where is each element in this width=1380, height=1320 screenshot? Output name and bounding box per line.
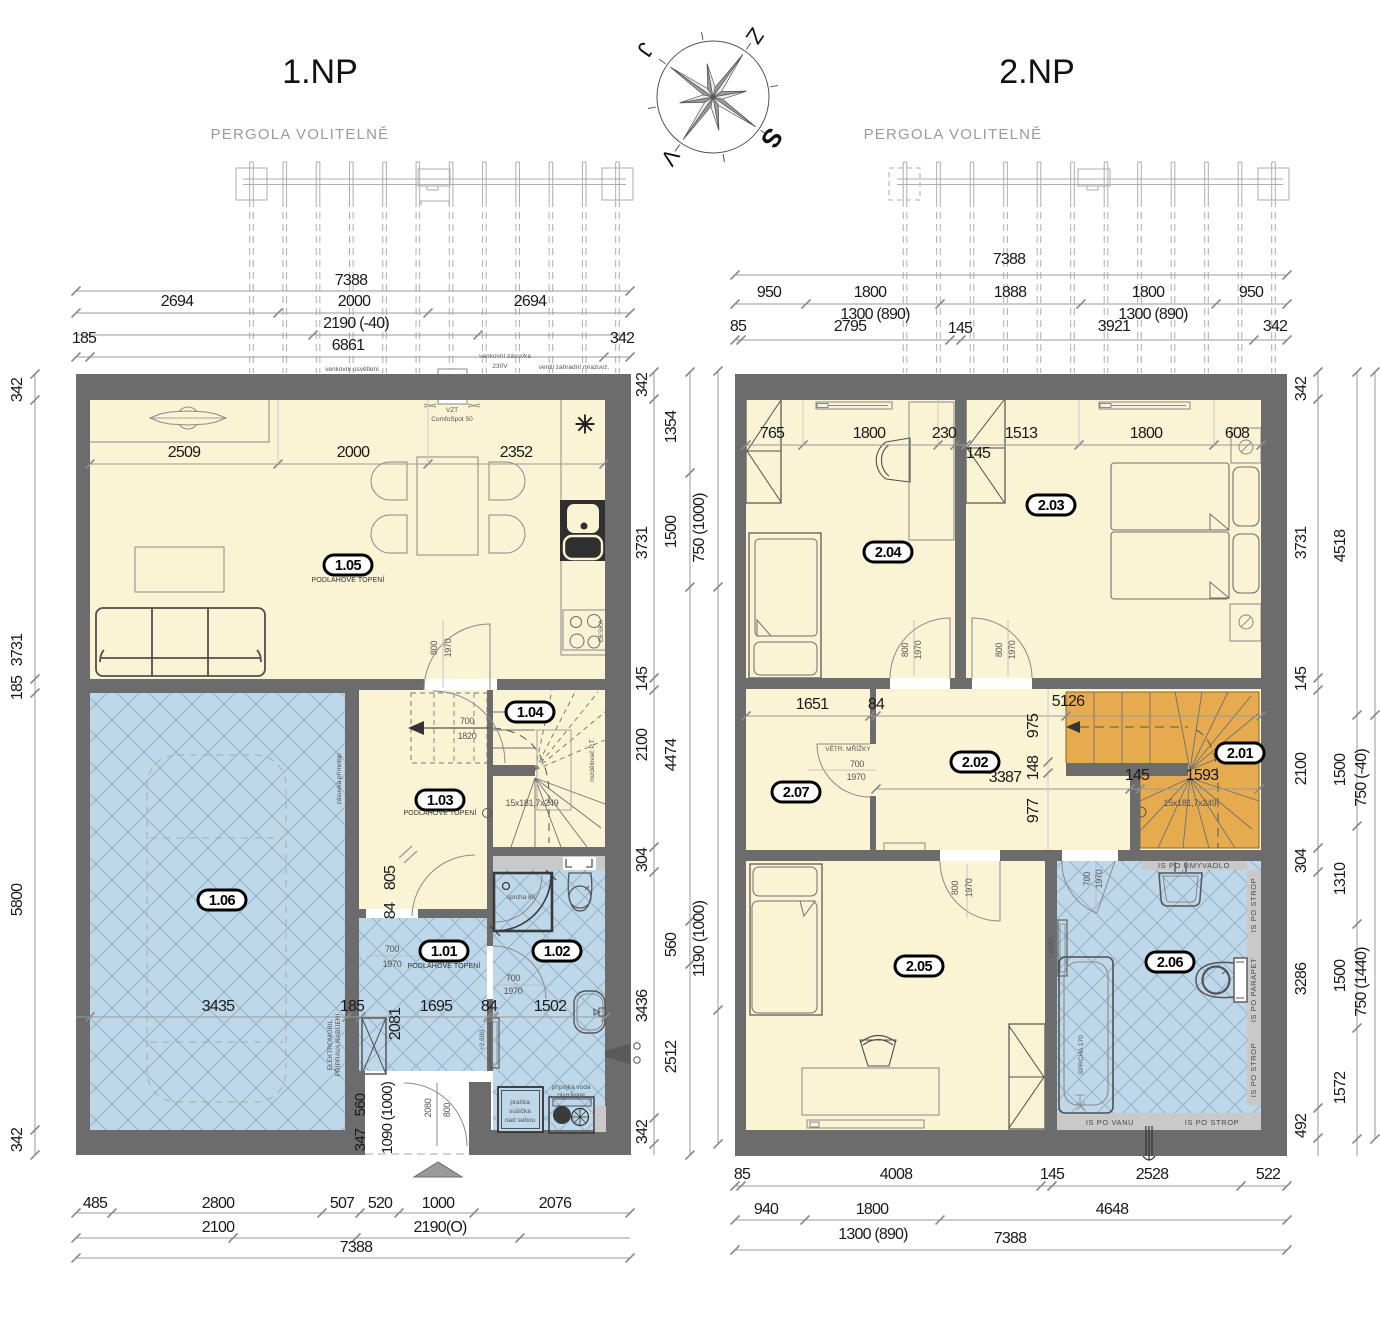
svg-text:+2,450: +2,450 [1048,938,1055,958]
svg-text:zásuvka přímotop: zásuvka přímotop [336,753,343,805]
svg-text:2795: 2795 [834,318,867,335]
svg-text:185: 185 [9,675,26,700]
svg-text:15x181,7x249: 15x181,7x249 [506,798,559,808]
svg-text:750 (1000): 750 (1000) [691,493,708,563]
svg-text:800: 800 [442,1103,452,1117]
svg-text:342: 342 [634,372,651,397]
svg-text:1593: 1593 [1186,767,1219,784]
svg-text:2.04: 2.04 [875,545,902,561]
svg-text:1.01: 1.01 [431,944,458,960]
svg-text:VZT: VZT [446,407,458,414]
svg-text:85: 85 [730,318,747,335]
svg-text:4648: 4648 [1096,1201,1129,1218]
svg-text:2190 (-40): 2190 (-40) [323,315,389,332]
svg-text:nad sebou: nad sebou [505,1117,536,1124]
svg-text:1970: 1970 [383,959,402,969]
svg-text:3387: 3387 [989,769,1022,786]
svg-text:1.05: 1.05 [335,558,362,574]
svg-text:145: 145 [1125,767,1150,784]
svg-text:4474: 4474 [663,738,680,771]
svg-text:1695: 1695 [420,998,453,1015]
svg-text:3921: 3921 [1098,318,1131,335]
svg-text:1888: 1888 [994,284,1027,301]
svg-text:3286: 3286 [1293,962,1310,995]
svg-text:1500: 1500 [663,515,680,548]
svg-text:85: 85 [734,1166,751,1183]
svg-text:342: 342 [9,377,26,402]
svg-text:2528: 2528 [1136,1166,1169,1183]
svg-text:1970: 1970 [913,640,923,659]
svg-text:145: 145 [634,666,651,691]
svg-text:7388: 7388 [335,272,368,289]
svg-text:+2,600: +2,600 [479,1030,486,1050]
svg-text:185: 185 [72,330,97,347]
svg-text:700: 700 [385,944,399,954]
svg-text:IS PO STROP: IS PO STROP [1249,878,1258,933]
svg-text:304: 304 [634,847,651,872]
svg-text:950: 950 [1239,284,1264,301]
svg-text:4008: 4008 [880,1166,913,1183]
svg-text:PODLAHOVÉ TOPENÍ: PODLAHOVÉ TOPENÍ [404,808,477,817]
svg-text:1970: 1970 [504,986,523,996]
svg-text:2512: 2512 [663,1040,680,1073]
svg-text:přípojka voda: přípojka voda [551,1084,590,1091]
svg-text:4518: 4518 [1332,529,1349,562]
svg-text:1502: 1502 [534,998,567,1015]
svg-text:230: 230 [932,425,957,442]
svg-text:3731: 3731 [9,633,26,666]
svg-text:800: 800 [429,641,439,655]
svg-text:IS PO STROP: IS PO STROP [1249,1043,1258,1098]
svg-text:ELEKTROMOBIL: ELEKTROMOBIL [327,1019,334,1070]
svg-text:342: 342 [1293,376,1310,401]
svg-text:1090 (1000): 1090 (1000) [379,1081,396,1154]
svg-text:975: 975 [1025,713,1042,738]
svg-text:2.05: 2.05 [906,959,933,975]
svg-text:1651: 1651 [796,696,829,713]
svg-text:145: 145 [1293,666,1310,691]
svg-text:2100: 2100 [1293,752,1310,785]
svg-text:2694: 2694 [514,293,547,310]
svg-text:185: 185 [340,998,365,1015]
svg-text:148: 148 [1025,755,1042,780]
svg-text:805: 805 [382,865,399,890]
svg-text:700: 700 [460,716,474,726]
svg-text:1970: 1970 [1007,640,1017,659]
svg-text:5800: 5800 [9,883,26,916]
svg-text:1800: 1800 [853,425,886,442]
svg-text:230V: 230V [492,363,508,370]
svg-text:PODLAHOVÉ TOPENÍ: PODLAHOVÉ TOPENÍ [312,575,385,584]
svg-text:7388: 7388 [340,1239,373,1256]
svg-text:507: 507 [330,1195,355,1212]
svg-text:2081: 2081 [387,1007,404,1040]
svg-text:3731: 3731 [1293,526,1310,559]
svg-text:1970: 1970 [847,772,866,782]
svg-text:950: 950 [757,284,782,301]
svg-text:1800: 1800 [854,284,887,301]
svg-text:2.NP: 2.NP [999,53,1075,91]
svg-text:347: 347 [352,1128,369,1151]
svg-text:plyn.kotel: plyn.kotel [557,1092,585,1099]
svg-text:1970: 1970 [443,638,453,657]
svg-text:rozdělovač P.T.: rozdělovač P.T. [589,738,596,782]
svg-text:PODLAHOVÉ TOPENÍ: PODLAHOVÉ TOPENÍ [408,961,481,970]
svg-text:1.04: 1.04 [517,705,544,721]
svg-text:1.03: 1.03 [427,793,454,809]
svg-text:PERGOLA VOLITELNĚ: PERGOLA VOLITELNĚ [211,126,390,143]
svg-text:2.06: 2.06 [1157,955,1184,971]
svg-text:2000: 2000 [337,444,370,461]
svg-text:2000: 2000 [338,293,371,310]
svg-text:608: 608 [1225,425,1250,442]
svg-text:sprcha 80: sprcha 80 [507,894,536,901]
svg-text:700: 700 [1082,872,1092,886]
svg-text:IS PO VANU: IS PO VANU [1086,1118,1134,1127]
svg-text:1572: 1572 [1332,1071,1349,1104]
svg-text:PŘÍPRAVA NABÍJENÍ: PŘÍPRAVA NABÍJENÍ [333,1014,342,1077]
svg-text:800: 800 [950,881,960,895]
svg-text:1.NP: 1.NP [282,53,358,91]
svg-text:1310: 1310 [1332,862,1349,895]
svg-text:304: 304 [1293,848,1310,873]
svg-text:145: 145 [966,445,991,462]
svg-text:2080: 2080 [423,1098,433,1117]
svg-text:2694: 2694 [161,293,194,310]
svg-text:2.02: 2.02 [962,755,989,771]
svg-text:DESKA: DESKA [598,619,605,642]
svg-text:800: 800 [994,643,1004,657]
svg-text:PERGOLA VOLITELNĚ: PERGOLA VOLITELNĚ [864,126,1043,143]
svg-text:1800: 1800 [1130,425,1163,442]
svg-text:3435: 3435 [202,998,235,1015]
svg-text:1500: 1500 [1332,959,1349,992]
svg-text:IS PO STROP: IS PO STROP [1185,1118,1240,1127]
svg-text:venkovní osvětlení: venkovní osvětlení [325,366,379,373]
svg-text:1513: 1513 [1005,425,1038,442]
svg-text:800: 800 [900,643,910,657]
svg-text:1000: 1000 [422,1195,455,1212]
svg-text:2100: 2100 [634,728,651,761]
svg-text:sušička: sušička [509,1108,531,1115]
svg-text:492: 492 [1293,1113,1310,1138]
svg-text:750 (-40): 750 (-40) [1353,749,1370,807]
svg-text:342: 342 [634,1119,651,1144]
svg-text:ComfoSpot 50: ComfoSpot 50 [431,416,473,423]
svg-text:560: 560 [663,932,680,957]
svg-text:1.06: 1.06 [209,893,236,909]
svg-text:1190 (1000): 1190 (1000) [691,900,708,977]
svg-text:940: 940 [754,1201,779,1218]
svg-text:522: 522 [1256,1166,1281,1183]
svg-text:IS PO UMYVADLO: IS PO UMYVADLO [1158,861,1230,870]
svg-text:2100: 2100 [202,1219,235,1236]
svg-text:pračka: pračka [510,1099,530,1106]
svg-text:560: 560 [352,1093,369,1116]
svg-text:2352: 2352 [500,444,533,461]
svg-text:750 (1440): 750 (1440) [1353,947,1370,1017]
svg-text:5126: 5126 [1052,693,1085,710]
svg-text:1800: 1800 [856,1201,889,1218]
svg-text:145: 145 [948,320,973,337]
svg-text:1800: 1800 [1132,284,1165,301]
svg-text:SPRCHA 170: SPRCHA 170 [1078,1035,1085,1075]
svg-text:700: 700 [850,759,864,769]
svg-text:765: 765 [760,425,785,442]
svg-text:977: 977 [1025,798,1042,823]
svg-text:84: 84 [481,998,498,1015]
svg-text:6861: 6861 [332,337,365,354]
svg-text:3731: 3731 [634,526,651,559]
svg-text:342: 342 [1263,318,1288,335]
svg-text:520: 520 [368,1195,393,1212]
svg-text:342: 342 [9,1127,26,1152]
svg-text:2.01: 2.01 [1227,746,1254,762]
svg-text:145: 145 [1040,1166,1065,1183]
svg-text:84: 84 [382,902,399,919]
svg-text:3436: 3436 [634,989,651,1022]
svg-text:84: 84 [868,696,885,713]
svg-text:1.02: 1.02 [544,944,571,960]
svg-text:1354: 1354 [663,410,680,443]
svg-text:700: 700 [506,973,520,983]
svg-text:IS PO PARAPET: IS PO PARAPET [1249,958,1258,1022]
svg-text:15x181,7x249: 15x181,7x249 [1164,798,1217,808]
svg-text:1970: 1970 [1094,869,1104,888]
svg-text:1500: 1500 [1332,753,1349,786]
svg-text:7388: 7388 [993,251,1026,268]
svg-text:ventil zahradní mrazuvz.: ventil zahradní mrazuvz. [539,364,610,371]
svg-text:2.03: 2.03 [1038,498,1065,514]
svg-text:2800: 2800 [202,1195,235,1212]
svg-text:2.07: 2.07 [783,785,810,801]
svg-text:342: 342 [610,330,635,347]
svg-text:1970: 1970 [964,878,974,897]
svg-text:2190(O): 2190(O) [413,1219,467,1236]
svg-text:7388: 7388 [994,1230,1027,1247]
svg-text:1820: 1820 [458,731,477,741]
svg-text:2509: 2509 [168,444,201,461]
svg-text:1300 (890): 1300 (890) [838,1226,908,1243]
svg-text:VĚTR. MŘÍŽKY: VĚTR. MŘÍŽKY [825,744,871,753]
svg-text:485: 485 [83,1195,108,1212]
svg-text:2076: 2076 [539,1195,572,1212]
